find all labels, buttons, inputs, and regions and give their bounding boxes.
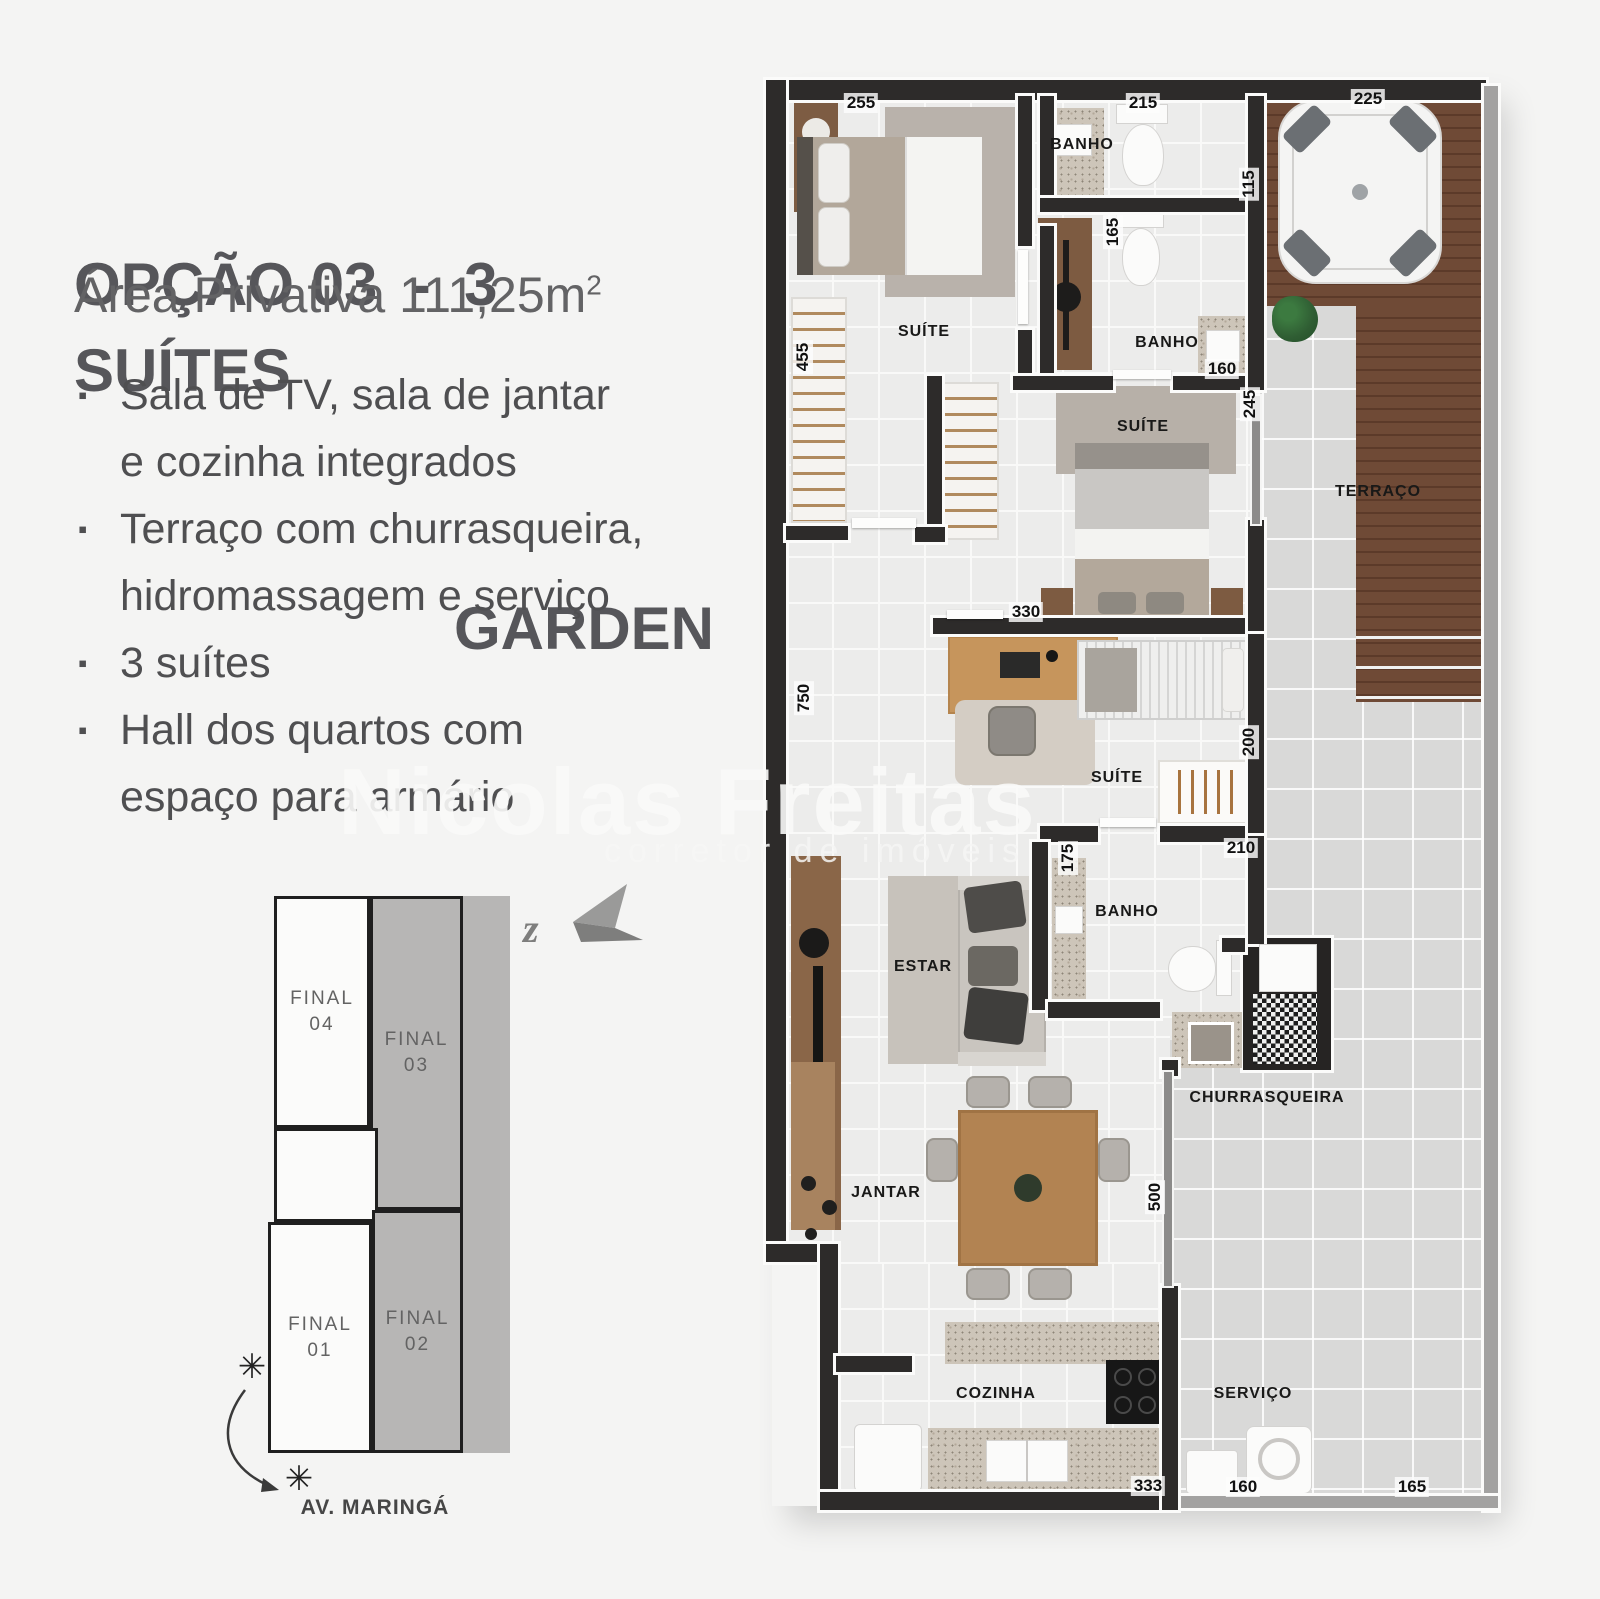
- dim-label: 500: [1145, 1180, 1165, 1214]
- stove: [1106, 1360, 1162, 1424]
- double-bed: [1075, 469, 1209, 529]
- wall: [927, 376, 942, 542]
- deck-step-line: [1356, 696, 1484, 699]
- room-label-estar: ESTAR: [894, 958, 952, 976]
- dim-label: 455: [793, 340, 813, 374]
- dim-label: 333: [1131, 1476, 1165, 1496]
- nightstand: [1041, 588, 1073, 620]
- sink-divider: [1026, 1440, 1028, 1482]
- toilet: [1122, 124, 1164, 186]
- sofa-armrest: [958, 1052, 1046, 1066]
- bed-blanket: [1085, 648, 1137, 712]
- burner: [1114, 1396, 1132, 1414]
- plant: [1272, 296, 1318, 342]
- sink: [1188, 1022, 1234, 1064]
- bullet-icon: ▪: [78, 630, 87, 697]
- room-label-jantar: JANTAR: [851, 1184, 921, 1202]
- bullet-icon: ▪: [78, 362, 87, 429]
- wall: [933, 618, 1248, 634]
- feature-item: ▪Terraço com churrasqueira,: [76, 496, 726, 563]
- room-label-banho-1: BANHO: [1050, 136, 1114, 154]
- wardrobe: [941, 382, 999, 540]
- pillow: [818, 207, 850, 267]
- dim-label: 245: [1240, 387, 1260, 421]
- closet: [1158, 760, 1250, 824]
- dim-label: 115: [1239, 167, 1259, 200]
- private-area-text: Área Privativa 111,25m2: [74, 266, 734, 324]
- table-centerpiece: [1014, 1174, 1042, 1202]
- wall: [820, 1492, 1178, 1510]
- wall: [1222, 938, 1245, 952]
- desk-lamp: [1046, 650, 1058, 662]
- burner: [1114, 1368, 1132, 1386]
- dim-label: 330: [1009, 602, 1043, 622]
- laptop: [1000, 652, 1040, 678]
- cabinet-knob: [1051, 282, 1081, 312]
- wall: [820, 1244, 838, 1510]
- dim-label: 200: [1239, 725, 1259, 759]
- toilet: [1122, 228, 1160, 286]
- dim-label: 210: [1224, 838, 1258, 858]
- hot-tub-drain: [1352, 184, 1368, 200]
- door: [1113, 370, 1171, 379]
- keyplan-unit-final-02: FINAL02: [372, 1210, 463, 1453]
- dim-label: 750: [794, 681, 814, 715]
- bed-headboard: [1075, 443, 1209, 469]
- sliding-glass-door: [1164, 1072, 1172, 1286]
- toilet: [1168, 946, 1216, 992]
- feature-item: ▪Sala de TV, sala de jantar: [76, 362, 726, 429]
- dim-label: 165: [1395, 1477, 1429, 1497]
- toilet-tank: [1116, 210, 1164, 228]
- wall: [1048, 1002, 1160, 1018]
- washer-door: [1258, 1438, 1300, 1480]
- sink: [1206, 330, 1240, 362]
- wall: [766, 80, 786, 1262]
- bed-blanket: [1075, 529, 1209, 559]
- room-label-terraco: TERRAÇO: [1335, 483, 1421, 501]
- decor-vase: [805, 1228, 817, 1240]
- door: [1018, 250, 1028, 324]
- dim-label: 225: [1351, 89, 1385, 109]
- sink: [1055, 906, 1083, 934]
- wall: [1040, 826, 1098, 842]
- decor-vase: [801, 1176, 816, 1191]
- room-label-churrasqueira: CHURRASQUEIRA: [1189, 1089, 1344, 1107]
- sun-icon: ✳: [238, 1347, 267, 1387]
- sofa-pillow: [963, 880, 1027, 934]
- street-label: AV. MARINGÁ: [230, 1496, 520, 1520]
- dim-label: 160: [1226, 1477, 1260, 1497]
- deck-step-line: [1356, 636, 1484, 639]
- pillow: [818, 143, 850, 203]
- bullet-icon: ▪: [78, 496, 87, 563]
- wall: [1040, 226, 1054, 390]
- dim-label: 165: [1103, 215, 1123, 249]
- sun-path-arrow: [215, 1382, 325, 1497]
- pillow: [1222, 648, 1244, 712]
- wall: [1013, 376, 1113, 390]
- nightstand: [1211, 588, 1243, 620]
- cushion: [1098, 592, 1136, 614]
- decor-vase: [822, 1200, 837, 1215]
- speaker: [799, 928, 829, 958]
- wood-deck-lower: [1356, 306, 1484, 702]
- wall: [1040, 96, 1054, 212]
- wall: [786, 526, 848, 540]
- burner: [1138, 1396, 1156, 1414]
- wall: [1032, 842, 1048, 1010]
- sofa-pillow: [963, 987, 1029, 1046]
- bullet-icon: ▪: [78, 697, 87, 764]
- wall: [1248, 520, 1264, 638]
- room-label-suite-2: SUÍTE: [1117, 418, 1169, 436]
- barbecue-grill-grate: [1253, 994, 1317, 1064]
- wall: [915, 527, 945, 542]
- room-label-cozinha: COZINHA: [956, 1385, 1036, 1403]
- refrigerator: [854, 1424, 922, 1492]
- dim-label: 255: [844, 93, 878, 113]
- room-label-banho-3: BANHO: [1095, 903, 1159, 921]
- room-label-suite-3: SUÍTE: [1091, 769, 1143, 787]
- barbecue-counter: [1259, 944, 1317, 992]
- bed-blanket: [905, 137, 982, 275]
- square-meter-sup: 2: [586, 269, 602, 300]
- room-label-servico: SERVIÇO: [1214, 1385, 1293, 1403]
- wall: [1040, 198, 1248, 212]
- keyplan-unit-final-04: FINAL04: [274, 896, 370, 1128]
- cushion: [1146, 592, 1184, 614]
- wall: [1248, 96, 1264, 390]
- door: [852, 518, 916, 528]
- dim-label: 215: [1126, 93, 1160, 113]
- dining-chair: [1098, 1138, 1130, 1182]
- bed-headboard: [797, 137, 813, 275]
- keyplan-unit-final-03: FINAL03: [370, 896, 463, 1210]
- svg-text:z: z: [521, 906, 539, 951]
- dining-chair: [1028, 1268, 1072, 1300]
- dining-chair: [926, 1138, 958, 1182]
- dining-chair: [966, 1268, 1010, 1300]
- north-arrow-icon: z: [515, 876, 650, 961]
- sofa-pillow: [968, 946, 1018, 986]
- floorplan-marketing-page: OPÇÃO 03 - 3 SUÍTES GARDEN Área Privativ…: [0, 0, 1600, 1599]
- keyplan-core-box: [274, 1128, 378, 1222]
- burner: [1138, 1368, 1156, 1386]
- bed-foot: [1075, 559, 1209, 621]
- dim-label: 175: [1058, 841, 1078, 875]
- terrace-wall: [1484, 86, 1498, 1510]
- door: [1100, 818, 1156, 827]
- door: [947, 610, 1003, 619]
- wall: [1018, 96, 1032, 246]
- dim-label: 160: [1205, 359, 1239, 379]
- dining-chair: [1028, 1076, 1072, 1108]
- watermark-tagline: corretor de imóveis: [604, 832, 1026, 871]
- wall: [836, 1356, 912, 1372]
- deck-step-line: [1356, 666, 1484, 669]
- terrace-wall: [1178, 1496, 1498, 1508]
- wardrobe: [791, 297, 847, 523]
- kitchen-peninsula-counter: [945, 1322, 1171, 1364]
- dining-chair: [966, 1076, 1010, 1108]
- feature-item: ▪3 suítes: [76, 630, 726, 697]
- room-label-banho-2: BANHO: [1135, 334, 1199, 352]
- room-label-suite-1: SUÍTE: [898, 323, 950, 341]
